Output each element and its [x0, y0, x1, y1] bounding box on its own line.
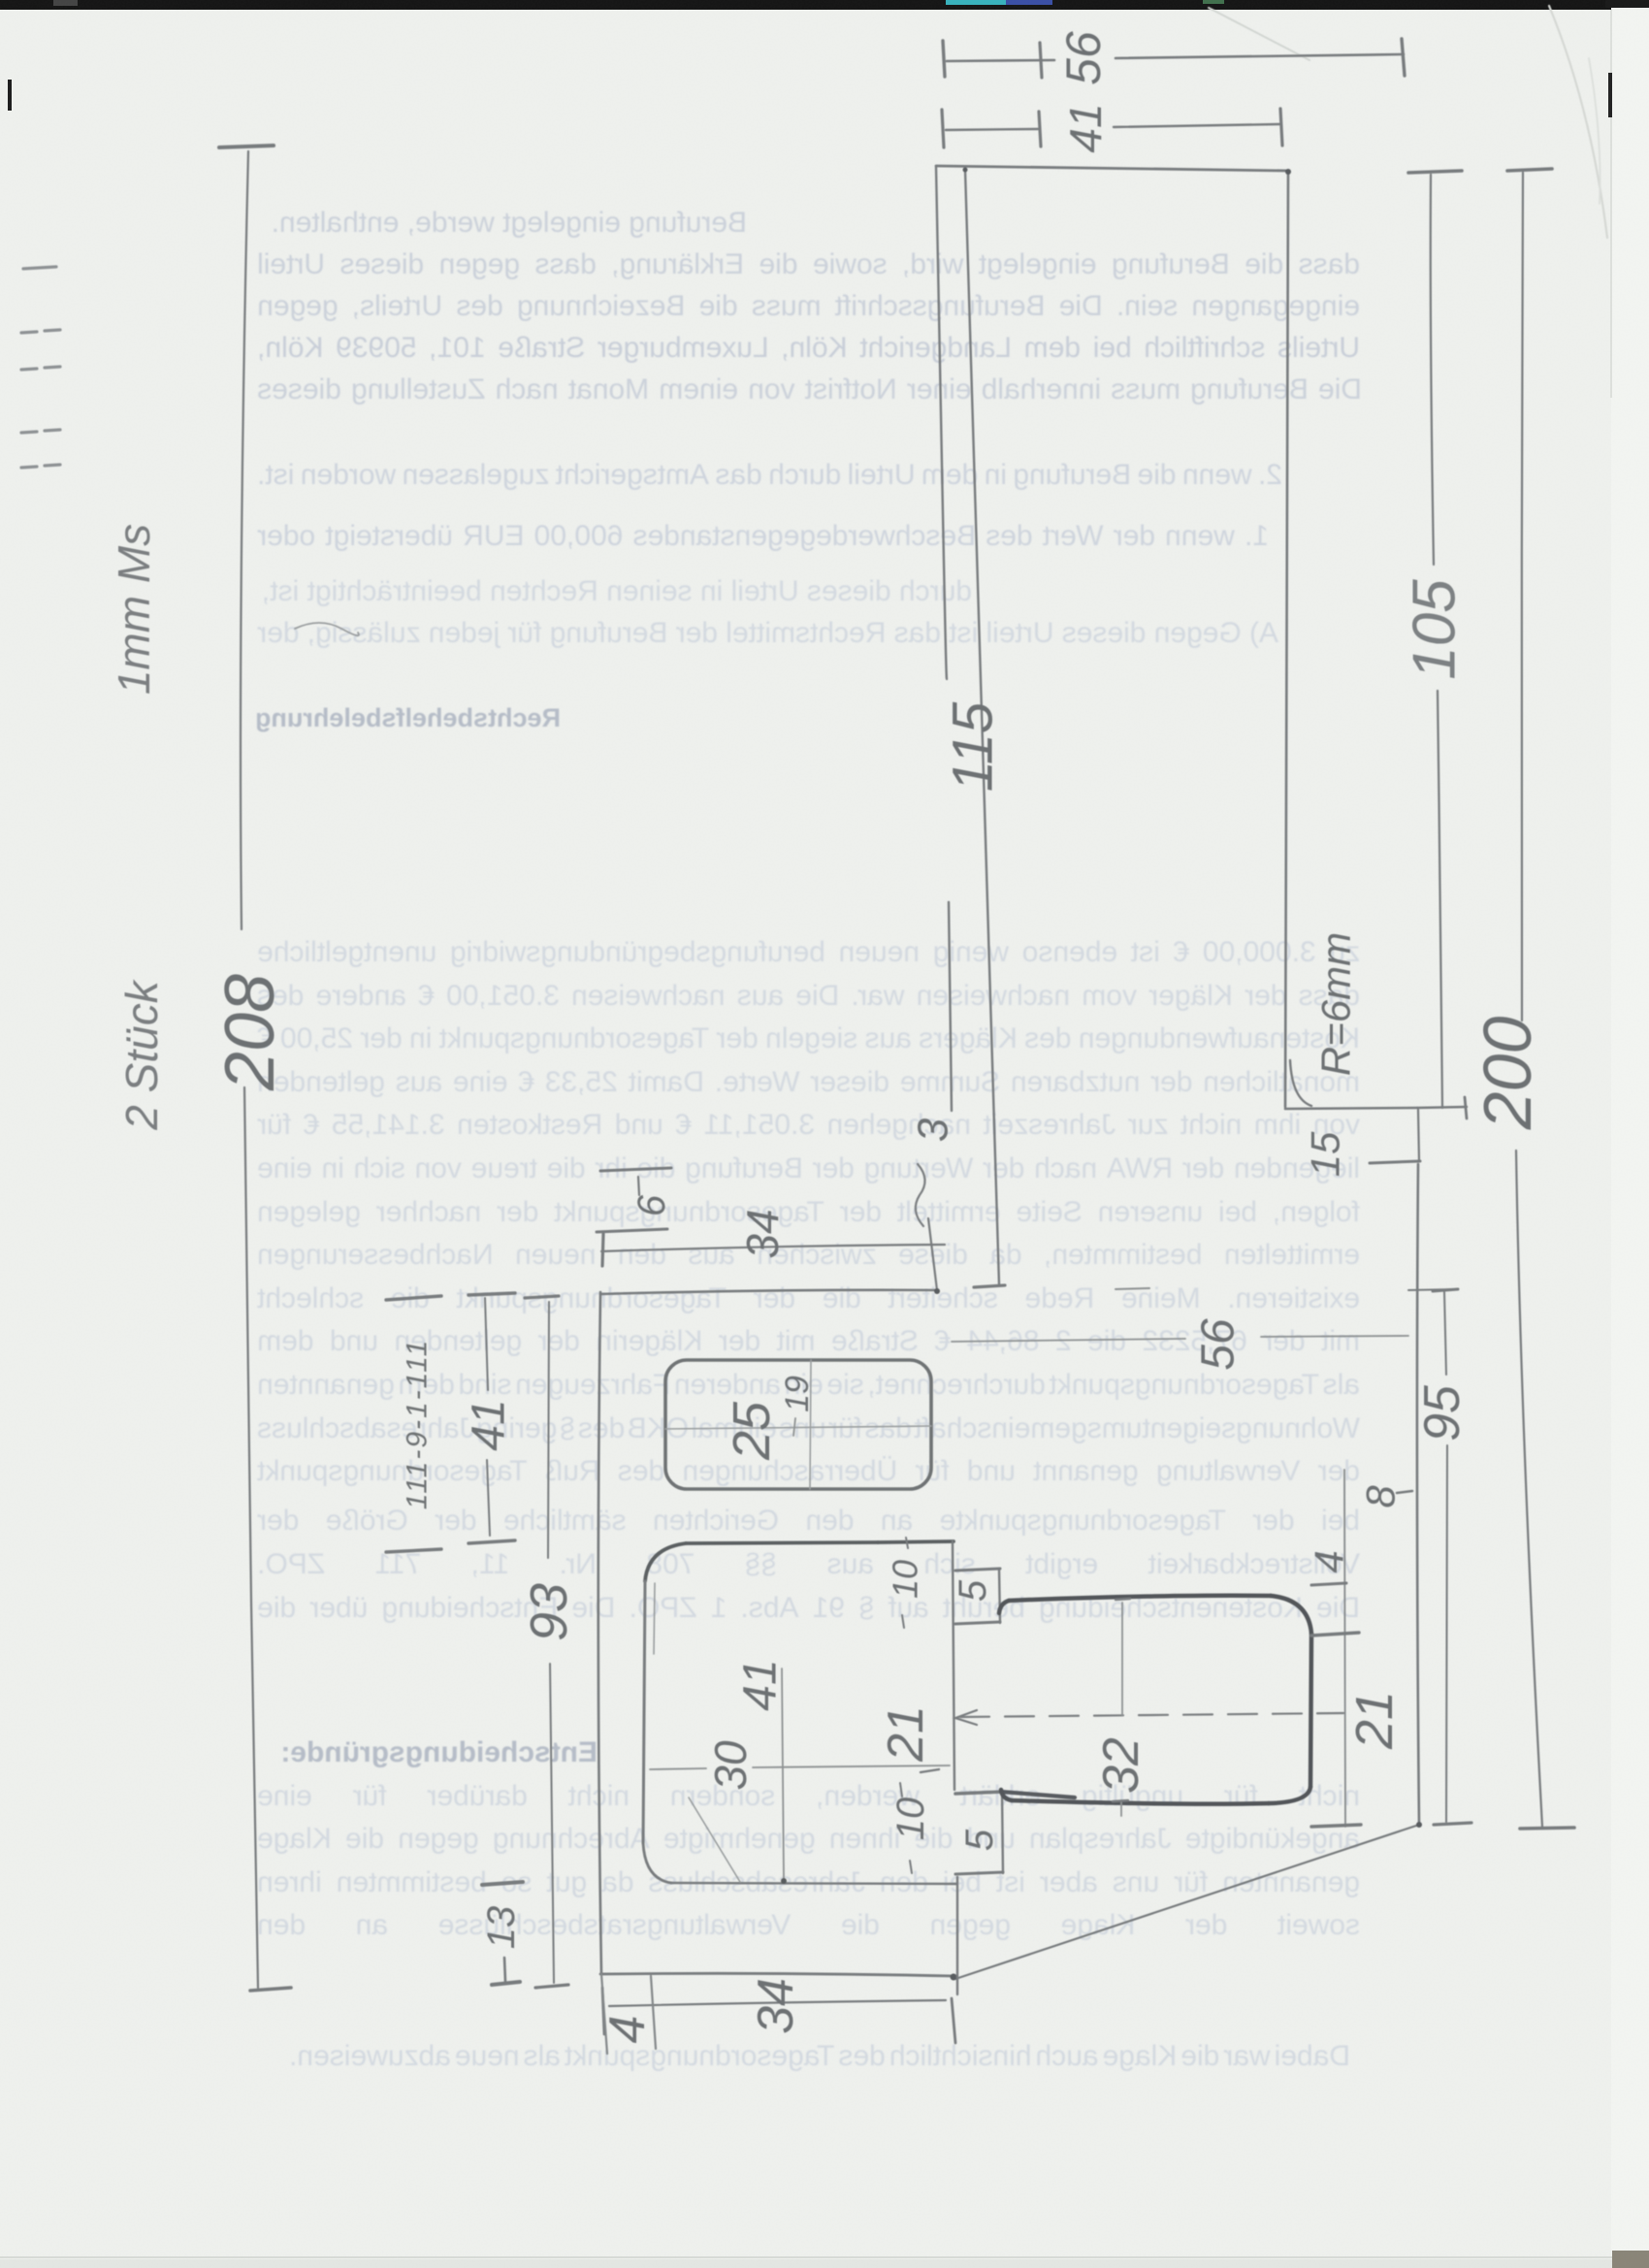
- svg-text:34: 34: [737, 1209, 788, 1258]
- svg-text:111-9-1-111: 111-9-1-111: [402, 1339, 434, 1510]
- svg-text:105: 105: [1402, 579, 1469, 680]
- svg-text:4: 4: [1307, 1550, 1352, 1572]
- svg-text:10: 10: [889, 1798, 932, 1841]
- svg-text:2 Stück: 2 Stück: [116, 979, 167, 1130]
- svg-text:41: 41: [464, 1399, 515, 1450]
- svg-text:41: 41: [735, 1659, 787, 1710]
- svg-text:34: 34: [748, 1978, 804, 2034]
- svg-text:R=6mm: R=6mm: [1313, 932, 1359, 1076]
- svg-text:208: 208: [211, 974, 289, 1091]
- svg-text:21: 21: [878, 1705, 934, 1763]
- svg-text:3: 3: [910, 1118, 957, 1142]
- svg-text:93: 93: [520, 1583, 578, 1641]
- svg-text:21: 21: [1345, 1691, 1404, 1750]
- svg-text:13: 13: [480, 1906, 523, 1950]
- svg-text:115: 115: [942, 701, 1005, 792]
- svg-text:1mm Ms: 1mm Ms: [109, 524, 159, 695]
- svg-text:5: 5: [958, 1829, 1001, 1851]
- svg-text:30: 30: [705, 1740, 756, 1791]
- svg-text:8: 8: [1358, 1485, 1404, 1508]
- svg-text:19: 19: [779, 1376, 816, 1412]
- svg-text:56: 56: [1193, 1318, 1245, 1371]
- svg-text:4: 4: [599, 2016, 656, 2044]
- svg-text:10: 10: [886, 1560, 925, 1599]
- svg-text:32: 32: [1093, 1737, 1149, 1794]
- svg-text:200: 200: [1470, 1017, 1545, 1131]
- svg-text:5: 5: [952, 1579, 994, 1602]
- svg-text:15: 15: [1303, 1131, 1348, 1177]
- svg-text:95: 95: [1414, 1384, 1471, 1442]
- svg-text:6: 6: [630, 1194, 673, 1216]
- svg-text:25: 25: [723, 1401, 781, 1461]
- svg-text:41: 41: [1060, 103, 1111, 152]
- svg-text:56: 56: [1056, 31, 1111, 85]
